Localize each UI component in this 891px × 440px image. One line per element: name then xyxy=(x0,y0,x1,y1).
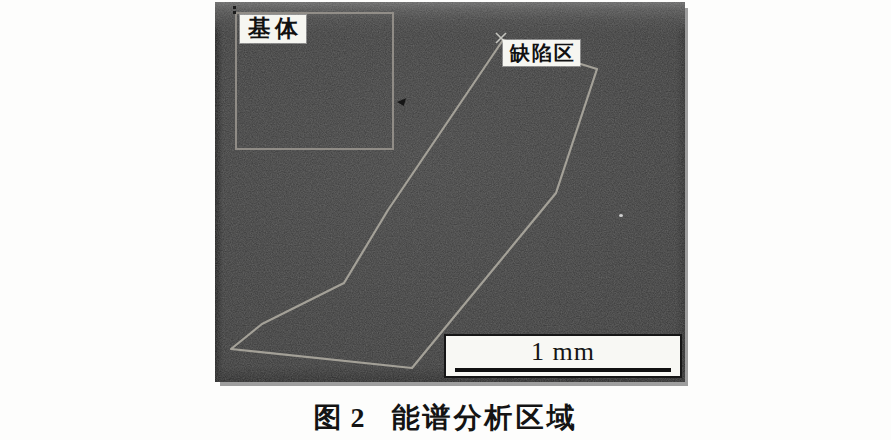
matrix-label: 基体 xyxy=(240,15,306,43)
grain-texture xyxy=(215,2,685,382)
figure-caption: 图 2能谱分析区域 xyxy=(0,399,891,437)
scale-bar-text: 1 mm xyxy=(446,337,680,367)
scale-bar: 1 mm xyxy=(444,334,682,378)
figure: 基体 缺陷区 1 mm 图 2能谱分析区域 xyxy=(0,0,891,440)
artifact-speck xyxy=(233,6,236,15)
caption-number: 图 2 xyxy=(314,402,366,433)
micrograph: 基体 缺陷区 1 mm xyxy=(215,2,685,382)
artifact-speck xyxy=(619,214,623,217)
micrograph-overlay xyxy=(215,2,685,382)
caption-title: 能谱分析区域 xyxy=(392,402,578,433)
scale-bar-line xyxy=(455,368,671,372)
defect-label: 缺陷区 xyxy=(503,40,580,66)
